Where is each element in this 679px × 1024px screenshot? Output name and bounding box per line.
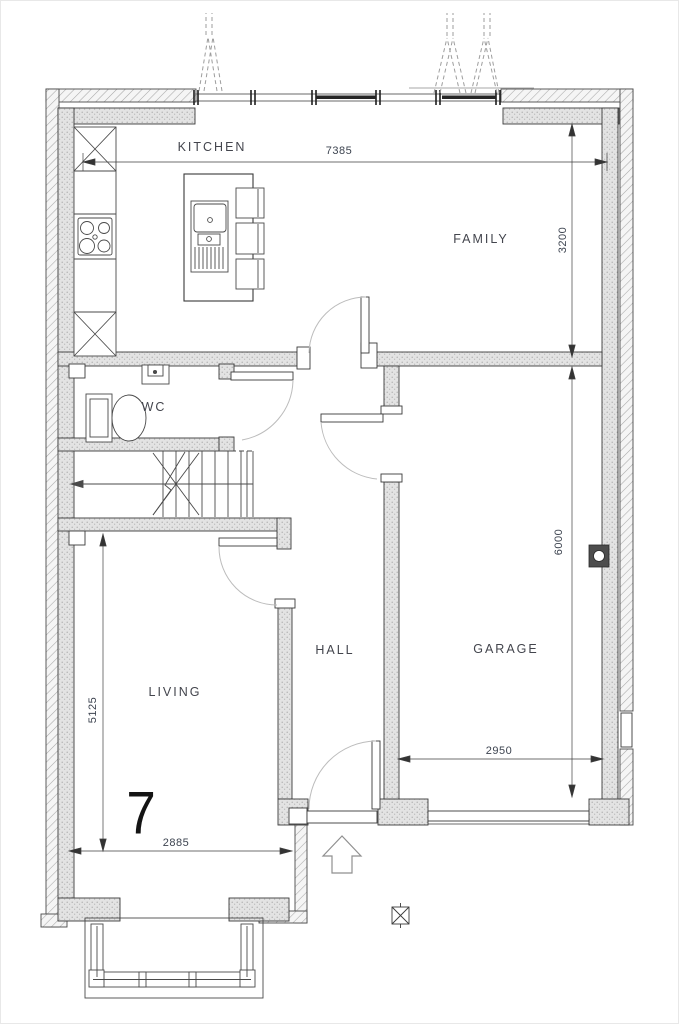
door-leaf-living bbox=[219, 538, 277, 546]
room-label-wc: WC bbox=[142, 400, 167, 414]
wall-living-hall bbox=[278, 601, 292, 799]
jamb-garage-door-top bbox=[381, 406, 402, 414]
wall-living-bottom-left bbox=[58, 898, 120, 921]
switch-box-icon bbox=[392, 903, 409, 928]
stool bbox=[236, 188, 264, 218]
dim-text-6000: 6000 bbox=[553, 529, 565, 555]
jamb-wc-corner bbox=[69, 364, 85, 378]
bifold-panel-bar-left bbox=[316, 96, 376, 100]
entrance-arrow-icon bbox=[323, 836, 361, 873]
doors bbox=[219, 297, 383, 809]
room-label-family: FAMILY bbox=[453, 232, 509, 246]
wall-garage-front-left bbox=[378, 799, 428, 825]
door-leaf-wc bbox=[231, 372, 293, 380]
door-arc-front bbox=[309, 741, 376, 809]
jamb-hall-partition-top bbox=[275, 599, 295, 608]
wall-wc-bottom bbox=[58, 438, 219, 451]
bay-window bbox=[85, 918, 263, 998]
door-leaf-garage bbox=[321, 414, 383, 422]
staircase bbox=[71, 451, 255, 517]
door-leaf-kitchen-hall bbox=[361, 297, 369, 353]
dim-text-7385: 7385 bbox=[326, 145, 352, 157]
sink-symbol bbox=[191, 201, 228, 272]
stool bbox=[236, 223, 264, 254]
outer-wall-left bbox=[46, 89, 59, 927]
meter-box-icon bbox=[589, 545, 609, 567]
door-arc-wc bbox=[242, 380, 293, 440]
outer-wall-living-east bbox=[295, 824, 307, 923]
jamb-kitchen-door-left bbox=[297, 347, 310, 369]
kitchen-island bbox=[184, 174, 264, 301]
outer-wall-right-upper bbox=[620, 89, 633, 711]
wall-garage-front-right bbox=[589, 799, 629, 825]
top-glazing bbox=[195, 88, 534, 101]
dim-text-3200: 3200 bbox=[557, 227, 569, 253]
side-gate-panel bbox=[621, 713, 632, 747]
stool bbox=[236, 259, 264, 289]
door-arc-living bbox=[219, 547, 277, 605]
wall-west bbox=[58, 108, 74, 899]
wall-family-garage bbox=[369, 352, 602, 366]
wall-living-bottom-right bbox=[229, 898, 289, 921]
dim-text-2950: 2950 bbox=[486, 745, 512, 757]
jamb-front-door-left bbox=[289, 808, 307, 824]
outer-wall-top-right bbox=[501, 89, 633, 102]
room-label-hall: HALL bbox=[315, 643, 354, 657]
wall-living-top bbox=[58, 518, 281, 531]
jamb-living-corner bbox=[69, 531, 85, 545]
wall-garage-west-lower bbox=[384, 482, 399, 799]
stair-break-line bbox=[153, 452, 185, 515]
floor-plan: KITCHEN FAMILY WC HALL LIVING GARAGE 738… bbox=[0, 0, 679, 1024]
garage-door-panel bbox=[428, 811, 589, 821]
wall-kitchen-top bbox=[58, 108, 195, 124]
front-door-threshold bbox=[307, 811, 377, 823]
outer-wall-top-left bbox=[46, 89, 196, 102]
plot-number: 7 bbox=[126, 779, 155, 848]
wall-east bbox=[602, 108, 618, 800]
room-label-living: LIVING bbox=[149, 685, 202, 699]
dimension-lines bbox=[69, 124, 607, 854]
door-arc-kitchen-hall bbox=[309, 297, 366, 353]
jamb-garage-door-bottom bbox=[381, 474, 402, 482]
dim-text-5125: 5125 bbox=[87, 697, 99, 723]
bifold-panel-bar-right bbox=[442, 96, 496, 100]
door-arc-garage bbox=[321, 422, 377, 479]
dim-text-2885: 2885 bbox=[163, 837, 189, 849]
bar-stools bbox=[236, 188, 264, 289]
wall-wc-door-jamb-bottom bbox=[219, 437, 234, 451]
bifold-fold-marks bbox=[199, 13, 499, 93]
room-label-kitchen: KITCHEN bbox=[178, 140, 247, 154]
room-label-garage: GARAGE bbox=[473, 642, 539, 656]
wall-living-door-jamb bbox=[277, 518, 291, 549]
door-leaf-front bbox=[372, 741, 380, 809]
